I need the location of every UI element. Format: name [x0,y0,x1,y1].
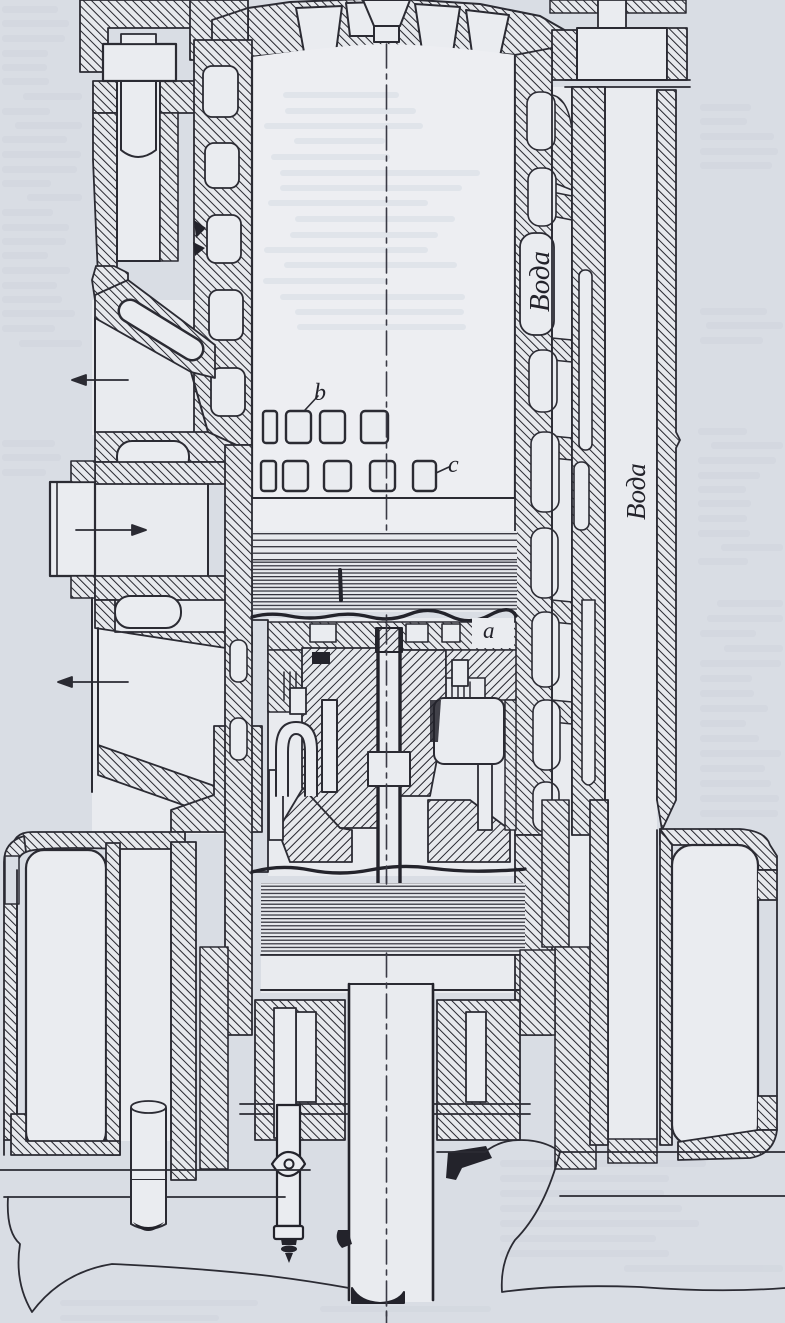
svg-text:c: c [448,452,459,478]
svg-text:b: b [314,380,326,406]
svg-text:a: a [483,618,495,643]
svg-text:Вода: Вода [621,463,651,520]
